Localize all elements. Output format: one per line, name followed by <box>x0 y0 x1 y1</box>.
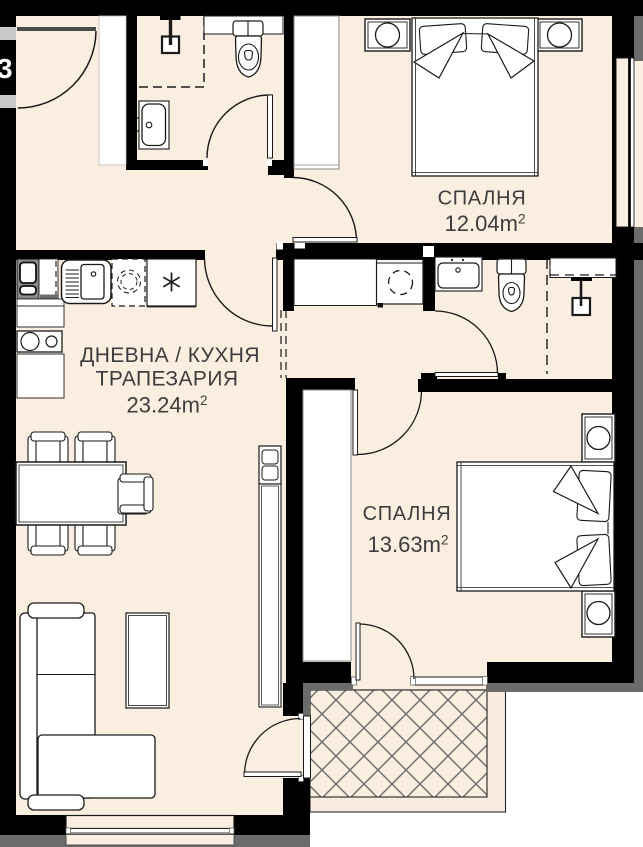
svg-text:СПАЛНЯ: СПАЛНЯ <box>363 503 452 525</box>
svg-text:13.63m2: 13.63m2 <box>368 532 449 557</box>
svg-text:3: 3 <box>0 53 13 84</box>
svg-text:23.24m2: 23.24m2 <box>127 393 208 418</box>
svg-text:12.04m2: 12.04m2 <box>445 211 526 236</box>
svg-text:СПАЛНЯ: СПАЛНЯ <box>438 188 527 210</box>
svg-text:ДНЕВНА / КУХНЯ: ДНЕВНА / КУХНЯ <box>80 344 260 367</box>
svg-text:ТРАПЕЗАРИЯ: ТРАПЕЗАРИЯ <box>96 368 239 391</box>
